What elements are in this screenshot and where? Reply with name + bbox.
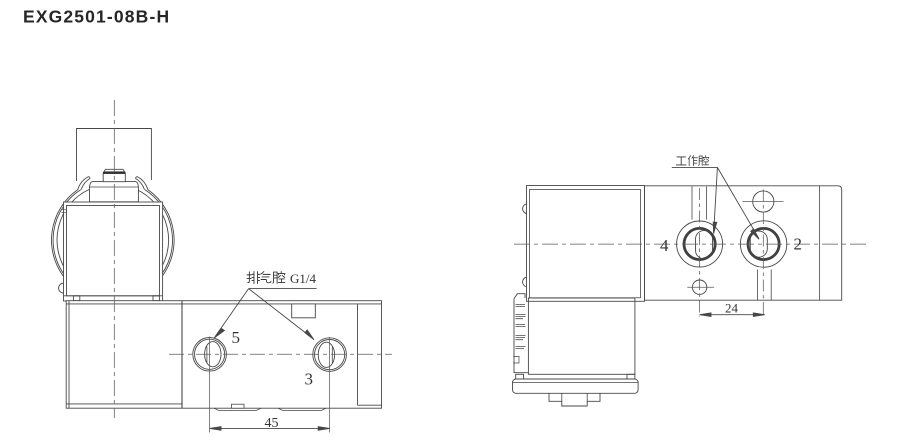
svg-text:3: 3 <box>305 370 314 389</box>
svg-text:G1/4: G1/4 <box>290 271 317 286</box>
svg-text:4: 4 <box>660 236 669 255</box>
svg-text:EXG2501-08B-H: EXG2501-08B-H <box>23 7 170 27</box>
svg-text:5: 5 <box>232 328 241 347</box>
svg-text:45: 45 <box>265 416 279 431</box>
svg-text:2: 2 <box>794 235 803 254</box>
svg-text:24: 24 <box>725 301 739 316</box>
